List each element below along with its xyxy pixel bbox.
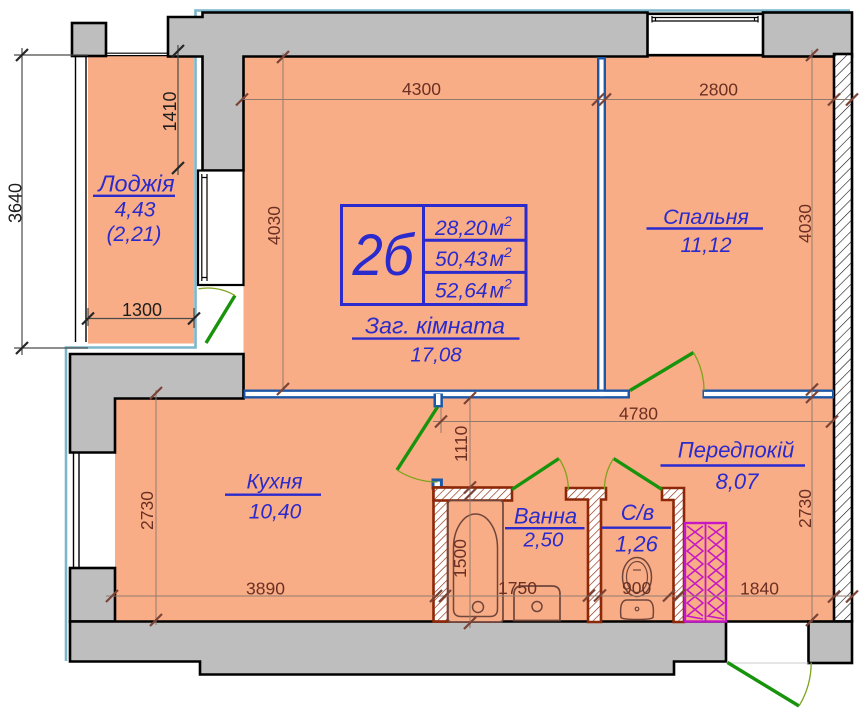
svg-text:Ванна: Ванна <box>514 504 577 529</box>
svg-text:1840: 1840 <box>740 579 779 599</box>
svg-text:Спальня: Спальня <box>663 205 749 229</box>
svg-text:Лоджія: Лоджія <box>96 171 175 197</box>
svg-text:900: 900 <box>622 578 651 598</box>
svg-text:Передпокій: Передпокій <box>678 438 794 463</box>
svg-text:2б: 2б <box>352 223 416 288</box>
svg-text:Кухня: Кухня <box>247 471 303 494</box>
svg-text:4780: 4780 <box>619 404 658 424</box>
svg-text:17,08: 17,08 <box>410 344 462 367</box>
svg-text:1410: 1410 <box>160 91 180 131</box>
svg-text:50,43м2: 50,43м2 <box>435 244 512 271</box>
svg-text:1300: 1300 <box>122 300 162 320</box>
svg-text:4,43: 4,43 <box>115 199 156 222</box>
svg-text:С/в: С/в <box>621 500 654 525</box>
svg-text:10,40: 10,40 <box>249 501 302 524</box>
svg-text:4030: 4030 <box>795 204 815 243</box>
svg-text:2730: 2730 <box>795 489 815 528</box>
svg-text:1750: 1750 <box>498 578 537 598</box>
svg-text:2,50: 2,50 <box>523 529 564 552</box>
svg-text:(2,21): (2,21) <box>107 223 162 246</box>
svg-text:11,12: 11,12 <box>681 234 732 257</box>
svg-text:2800: 2800 <box>699 80 738 100</box>
svg-text:3890: 3890 <box>246 579 285 599</box>
svg-text:3640: 3640 <box>6 183 26 223</box>
svg-text:Заг. кімната: Заг. кімната <box>365 313 505 339</box>
svg-text:1110: 1110 <box>451 425 471 462</box>
svg-text:4300: 4300 <box>402 79 441 99</box>
svg-text:52,64м2: 52,64м2 <box>435 276 512 303</box>
svg-text:1,26: 1,26 <box>615 532 659 557</box>
svg-text:28,20м2: 28,20м2 <box>434 213 512 240</box>
svg-text:1500: 1500 <box>450 539 470 578</box>
svg-text:4030: 4030 <box>264 206 284 245</box>
svg-text:8,07: 8,07 <box>716 469 760 494</box>
svg-text:2730: 2730 <box>137 491 157 530</box>
